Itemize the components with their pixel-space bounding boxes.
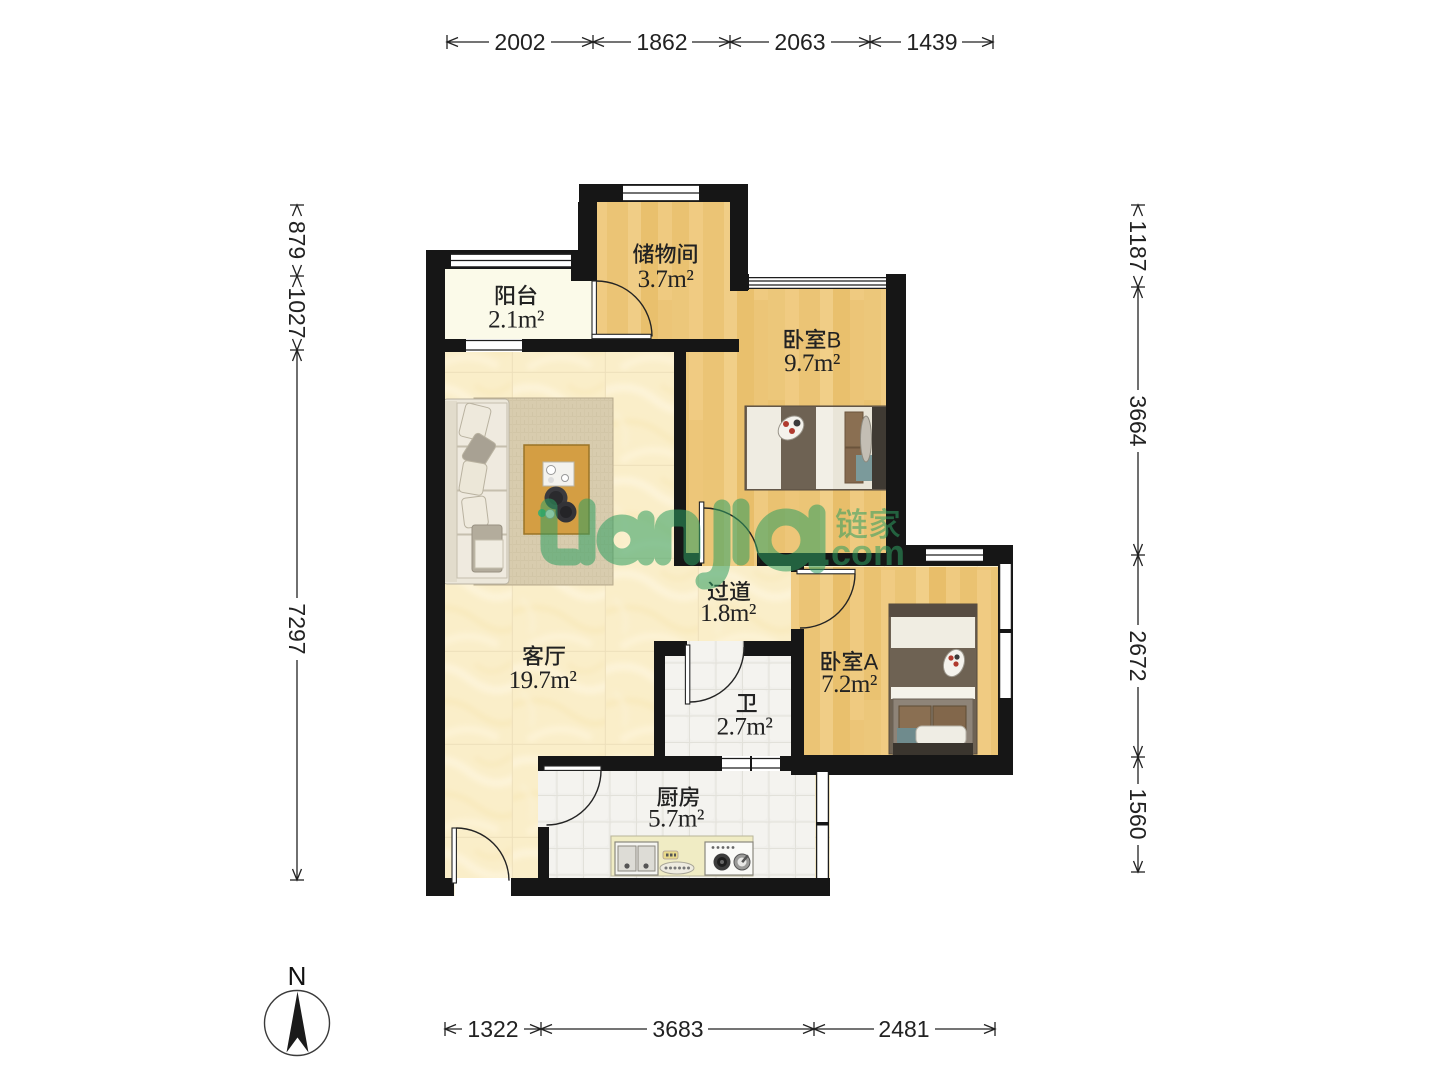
svg-text:2063: 2063 [774,29,825,55]
svg-text:2672: 2672 [1125,630,1151,681]
svg-text:.com: .com [821,532,905,573]
svg-text:1560: 1560 [1125,788,1151,839]
svg-text:879: 879 [284,221,310,259]
svg-text:19.7m²: 19.7m² [509,667,577,694]
svg-text:1862: 1862 [636,29,687,55]
svg-text:5.7m²: 5.7m² [648,806,704,833]
svg-text:2481: 2481 [878,1016,929,1042]
svg-text:1322: 1322 [467,1016,518,1042]
svg-text:1187: 1187 [1125,220,1151,271]
svg-text:1439: 1439 [906,29,957,55]
svg-text:3.7m²: 3.7m² [638,266,694,293]
svg-text:B: B [827,327,842,352]
svg-text:3683: 3683 [652,1016,703,1042]
svg-text:2.7m²: 2.7m² [717,714,773,741]
svg-text:2002: 2002 [494,29,545,55]
svg-text:7.2m²: 7.2m² [821,671,877,698]
svg-text:N: N [288,961,307,991]
svg-text:3664: 3664 [1125,395,1151,446]
svg-text:9.7m²: 9.7m² [784,350,840,377]
svg-text:7297: 7297 [284,603,310,654]
svg-text:2.1m²: 2.1m² [488,307,544,334]
svg-text:1.8m²: 1.8m² [700,600,756,627]
svg-text:1027: 1027 [284,287,310,338]
